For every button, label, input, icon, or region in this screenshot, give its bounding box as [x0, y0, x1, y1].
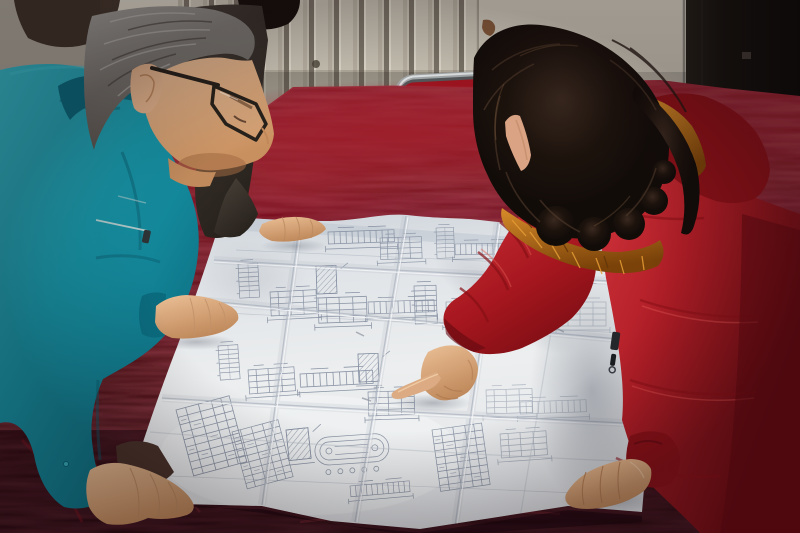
photo-scene — [0, 0, 800, 533]
photo-canvas — [0, 0, 800, 533]
vignette — [0, 0, 800, 533]
